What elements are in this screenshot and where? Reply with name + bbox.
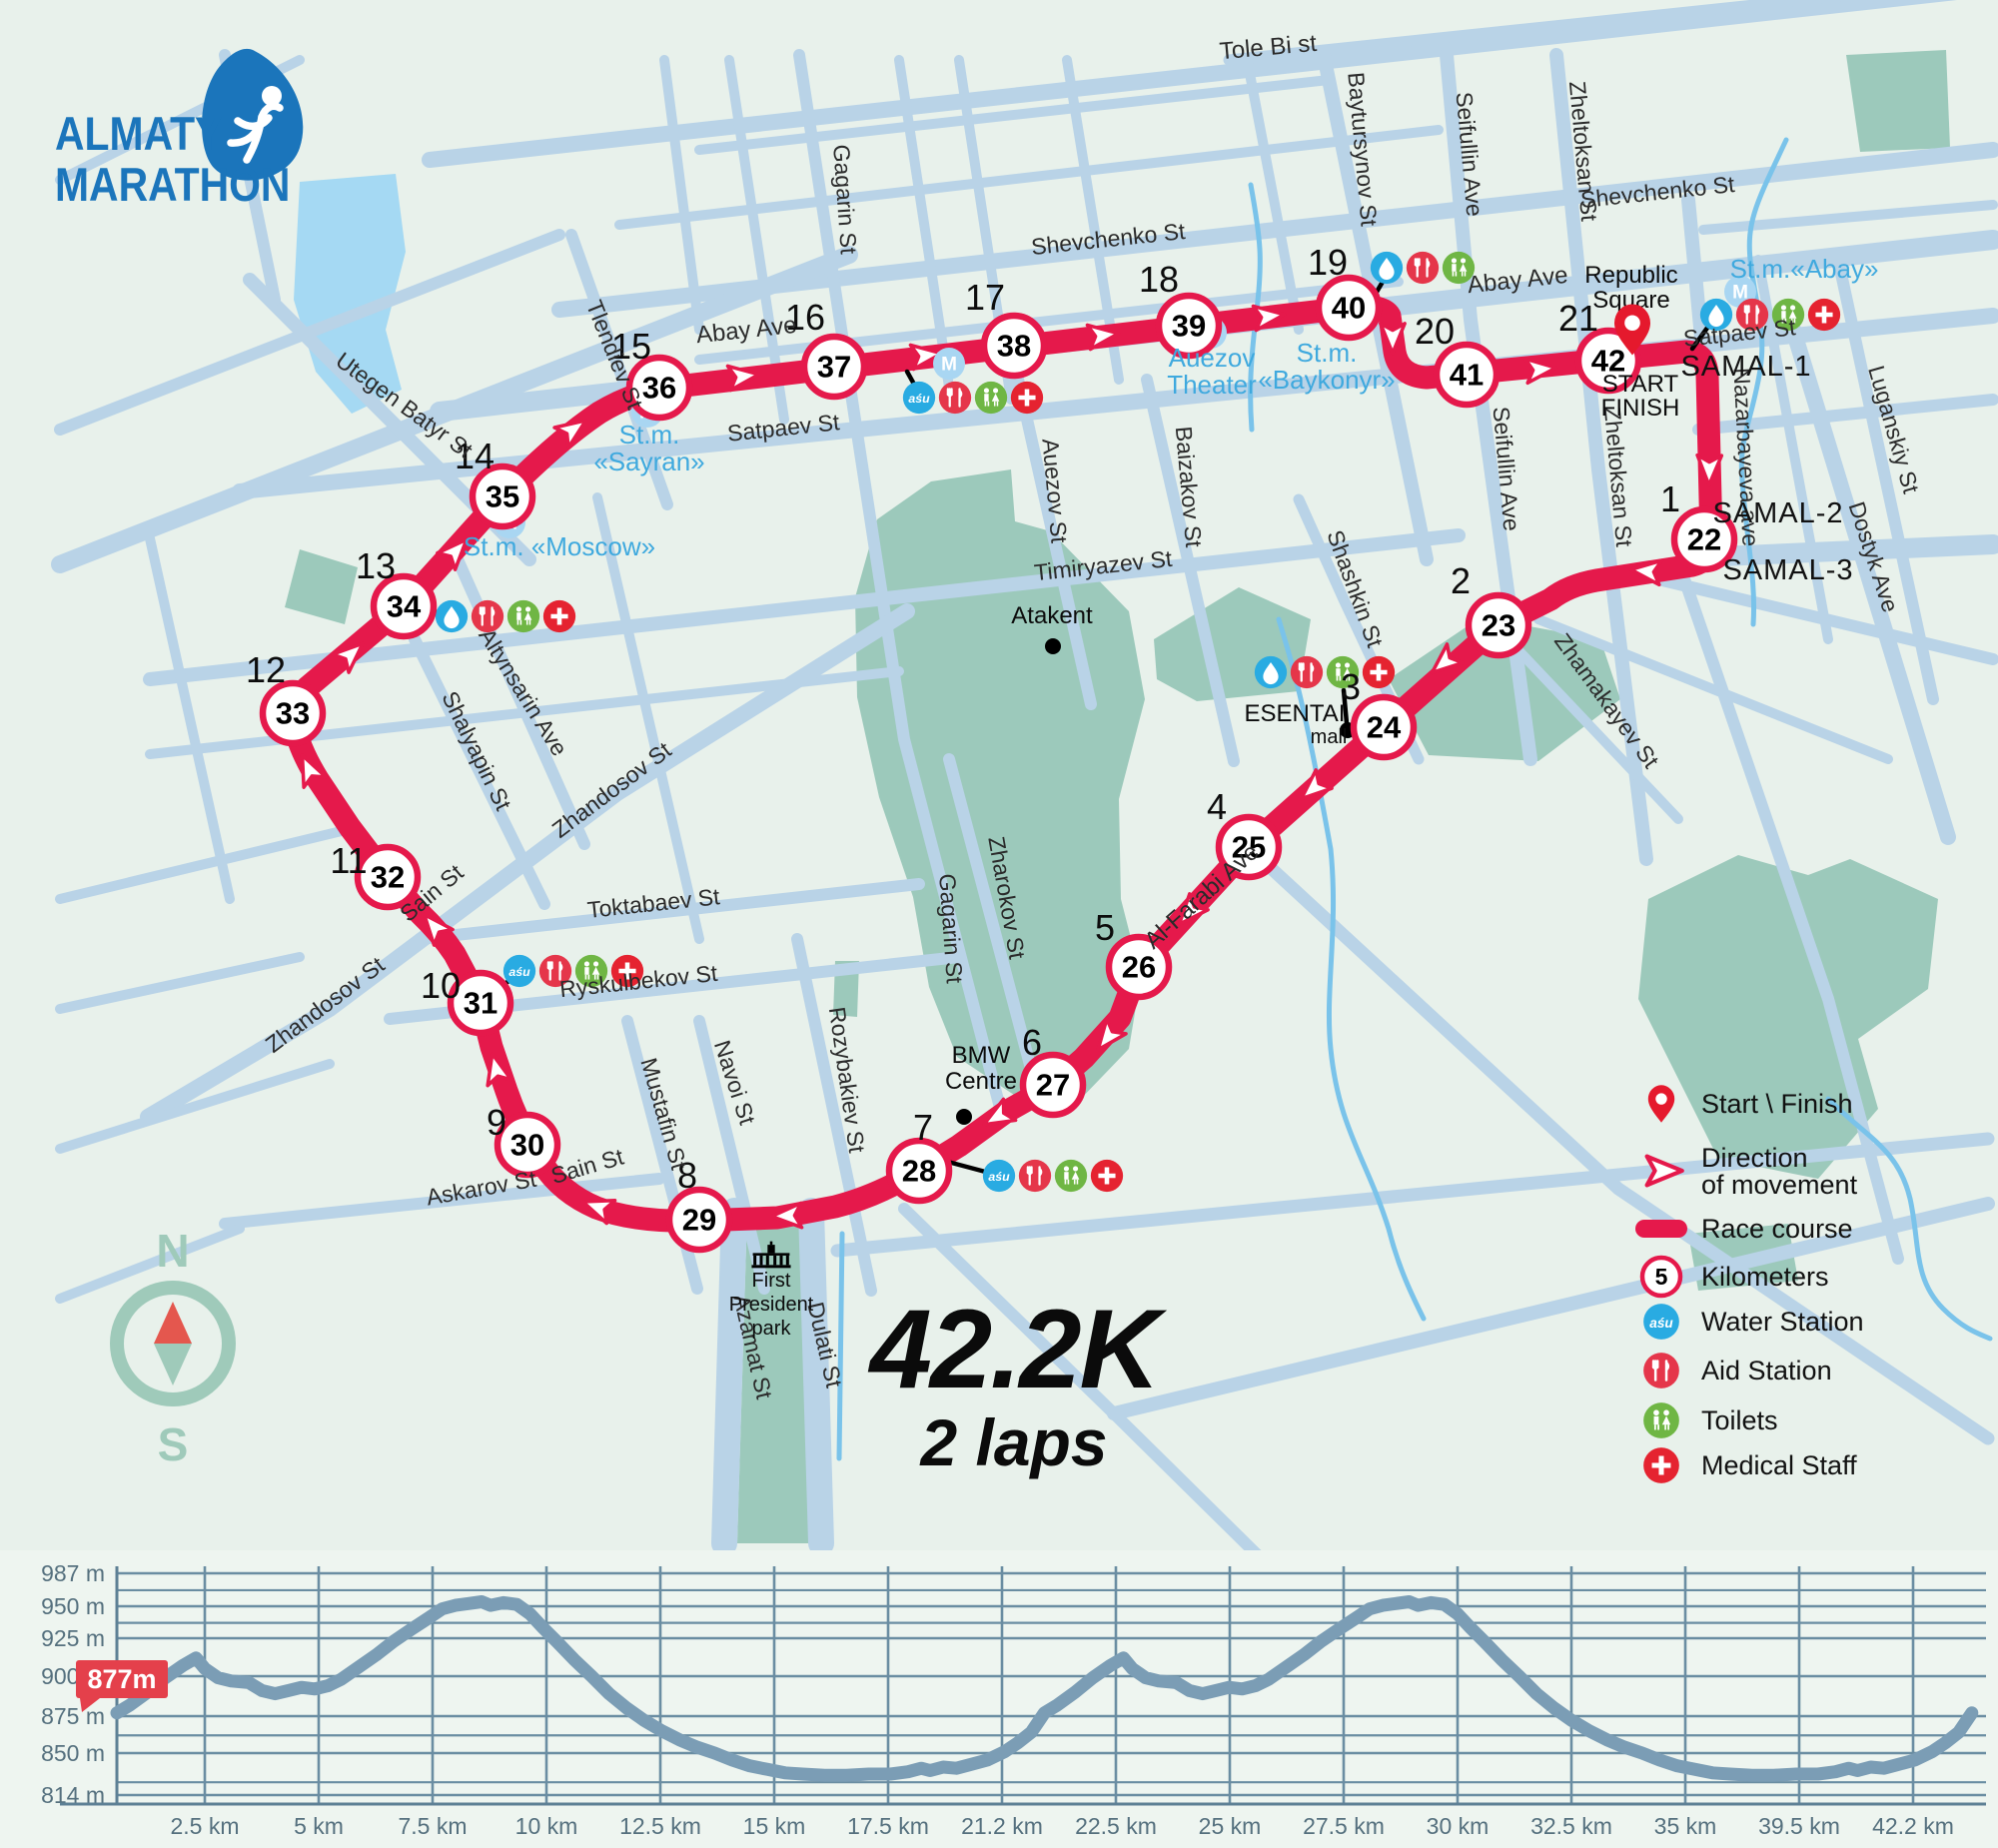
water-station-icon	[1255, 656, 1287, 688]
legend-label: Start \ Finish	[1701, 1089, 1853, 1119]
medical-staff-icon	[1808, 299, 1840, 331]
legend-kilometers-badge: 5	[1655, 1264, 1668, 1290]
map-canvas: aśu	[0, 0, 1998, 1848]
km-label: 7	[913, 1107, 933, 1148]
km-marker-number: 41	[1450, 358, 1484, 393]
map-label: St.m.	[619, 420, 680, 450]
legend-race-course-icon	[1635, 1220, 1687, 1238]
legend-wc-icon	[1643, 1402, 1679, 1438]
km-label: 19	[1308, 242, 1348, 283]
chart-x-tick: 30 km	[1427, 1813, 1490, 1839]
map-label: «Baykonyr»	[1258, 365, 1395, 395]
km-label: 20	[1415, 311, 1455, 352]
km-marker-number: 26	[1122, 950, 1156, 985]
chart-y-tick: 987 m	[41, 1560, 105, 1586]
km-marker-number: 34	[387, 589, 422, 624]
chart-x-tick: 21.2 km	[961, 1813, 1043, 1839]
km-label: 17	[965, 277, 1005, 318]
km-marker-number: 38	[997, 329, 1031, 364]
map-label: Auezov St	[1037, 438, 1072, 544]
chart-x-tick: 10 km	[515, 1813, 578, 1839]
race-distance: 42.2K	[799, 1294, 1229, 1405]
chart-x-tick: 42.2 km	[1872, 1813, 1954, 1839]
compass: NS	[117, 1225, 229, 1470]
start-elevation-label: 877m	[87, 1664, 156, 1694]
km-marker-number: 32	[371, 860, 405, 895]
chart-x-tick: 39.5 km	[1758, 1813, 1840, 1839]
chart-y-tick: 850 m	[41, 1740, 105, 1766]
map-label: Zhandosov St	[261, 951, 390, 1058]
map-label: Mustafin St	[635, 1055, 692, 1173]
legend-label: Kilometers	[1701, 1262, 1829, 1292]
map-label: mall	[1311, 726, 1348, 748]
toilets-icon	[1055, 1160, 1087, 1192]
map-label: St.m.«Abay»	[1730, 254, 1879, 284]
map-label: BMW	[952, 1042, 1011, 1069]
logo-line1: ALMATY	[55, 108, 290, 159]
km-marker-number: 29	[682, 1203, 716, 1238]
km-label: 18	[1139, 259, 1179, 300]
chart-x-tick: 15 km	[743, 1813, 806, 1839]
medical-staff-icon	[1011, 382, 1043, 414]
km-label: 4	[1207, 786, 1227, 827]
map-label: Shevchenko St	[1579, 171, 1736, 213]
chart-x-tick: 7.5 km	[398, 1813, 467, 1839]
map-label: park	[752, 1318, 792, 1340]
map-label: Auezov	[1169, 343, 1256, 373]
aid-station-icon	[1407, 252, 1439, 284]
chart-x-tick: 32.5 km	[1530, 1813, 1612, 1839]
km-label: 5	[1095, 907, 1115, 948]
map-label: «Sayran»	[593, 447, 704, 476]
map-label: Askarov St	[425, 1166, 539, 1211]
metro-icon	[933, 348, 965, 380]
map-label: START	[1602, 371, 1679, 398]
legend-label: Toilets	[1701, 1405, 1778, 1435]
map-label: First	[752, 1270, 791, 1292]
map-label: Theater	[1167, 370, 1257, 400]
legend-med-icon	[1643, 1447, 1679, 1483]
chart-x-tick: 12.5 km	[619, 1813, 701, 1839]
legend-label: Water Station	[1701, 1307, 1864, 1337]
water-station-asu-icon	[983, 1160, 1015, 1192]
toilets-icon	[507, 600, 539, 632]
km-marker-number: 31	[464, 986, 498, 1021]
map-label: Al-Farabi Ave	[1140, 838, 1265, 954]
legend-asu-icon	[1643, 1304, 1679, 1340]
compass-needle-north	[154, 1302, 192, 1344]
water-station-icon	[1371, 252, 1403, 284]
aid-station-icon	[1291, 656, 1323, 688]
poi-dot	[1045, 638, 1061, 654]
map-label: SAMAL-2	[1712, 497, 1843, 529]
medical-staff-icon	[543, 600, 575, 632]
almaty-marathon-course-map: aśu	[0, 0, 1998, 1848]
km-label: 10	[421, 965, 461, 1006]
km-label: 9	[487, 1102, 506, 1143]
km-label: 2	[1451, 560, 1471, 601]
compass-north-label: N	[156, 1225, 189, 1277]
km-label: 13	[356, 545, 396, 586]
chart-x-tick: 22.5 km	[1075, 1813, 1157, 1839]
map-label: St.m. «Moscow»	[464, 531, 655, 561]
map-label: FINISH	[1601, 395, 1680, 422]
km-marker-number: 24	[1367, 710, 1402, 745]
km-marker-number: 33	[276, 696, 310, 731]
km-label: 11	[330, 840, 367, 881]
km-label: 1	[1660, 478, 1680, 519]
medical-staff-icon	[1091, 1160, 1123, 1192]
map-label: St.m.	[1297, 338, 1358, 368]
km-label: 12	[246, 649, 286, 690]
chart-x-tick: 35 km	[1654, 1813, 1717, 1839]
km-marker-number: 30	[510, 1128, 544, 1163]
map-label: Republic	[1584, 262, 1677, 289]
toilets-icon	[975, 382, 1007, 414]
legend-aid-icon	[1643, 1353, 1679, 1388]
map-label: Shalyapin St	[437, 687, 516, 815]
race-laps: 2 laps	[799, 1405, 1229, 1479]
medical-staff-icon	[1363, 656, 1395, 688]
chart-x-tick: 27.5 km	[1303, 1813, 1385, 1839]
chart-y-tick: 875 m	[41, 1703, 105, 1729]
km-label: 6	[1022, 1022, 1042, 1063]
map-label: Centre	[945, 1068, 1017, 1095]
km-marker-number: 37	[817, 350, 851, 385]
legend-start-finish-icon	[1648, 1085, 1674, 1122]
km-marker-number: 40	[1332, 291, 1366, 326]
aid-station-icon	[939, 382, 971, 414]
km-marker-number: 35	[486, 479, 519, 514]
chart-y-tick: 950 m	[41, 1593, 105, 1619]
km-marker-number: 27	[1036, 1068, 1070, 1103]
legend-label: Aid Station	[1701, 1356, 1832, 1386]
water-station-icon	[436, 600, 468, 632]
map-label: SAMAL-3	[1722, 554, 1853, 586]
km-marker-number: 23	[1482, 608, 1515, 643]
water-station-asu-icon	[503, 955, 535, 987]
race-title: 42.2K 2 laps	[799, 1294, 1229, 1479]
legend-label: Medical Staff	[1701, 1450, 1857, 1480]
km-marker-number: 39	[1172, 309, 1206, 344]
legend-label: Race course	[1701, 1214, 1853, 1244]
chart-y-tick: 925 m	[41, 1625, 105, 1651]
map-label: ESENTAI	[1245, 700, 1346, 727]
chart-x-tick: 25 km	[1199, 1813, 1262, 1839]
km-marker-number: 28	[902, 1154, 936, 1189]
logo-line2: MARATHON	[55, 159, 290, 210]
water-station-asu-icon	[903, 382, 935, 414]
chart-x-tick: 17.5 km	[847, 1813, 929, 1839]
map-label: Atakent	[1011, 602, 1093, 629]
map-label: SAMAL-1	[1680, 351, 1811, 383]
chart-x-tick: 2.5 km	[170, 1813, 239, 1839]
compass-needle-south	[154, 1344, 192, 1386]
compass-south-label: S	[158, 1418, 189, 1470]
logo-text: ALMATY MARATHON	[55, 108, 290, 210]
poi-dot	[956, 1109, 972, 1125]
chart-x-tick: 5 km	[294, 1813, 344, 1839]
aid-station-icon	[1019, 1160, 1051, 1192]
